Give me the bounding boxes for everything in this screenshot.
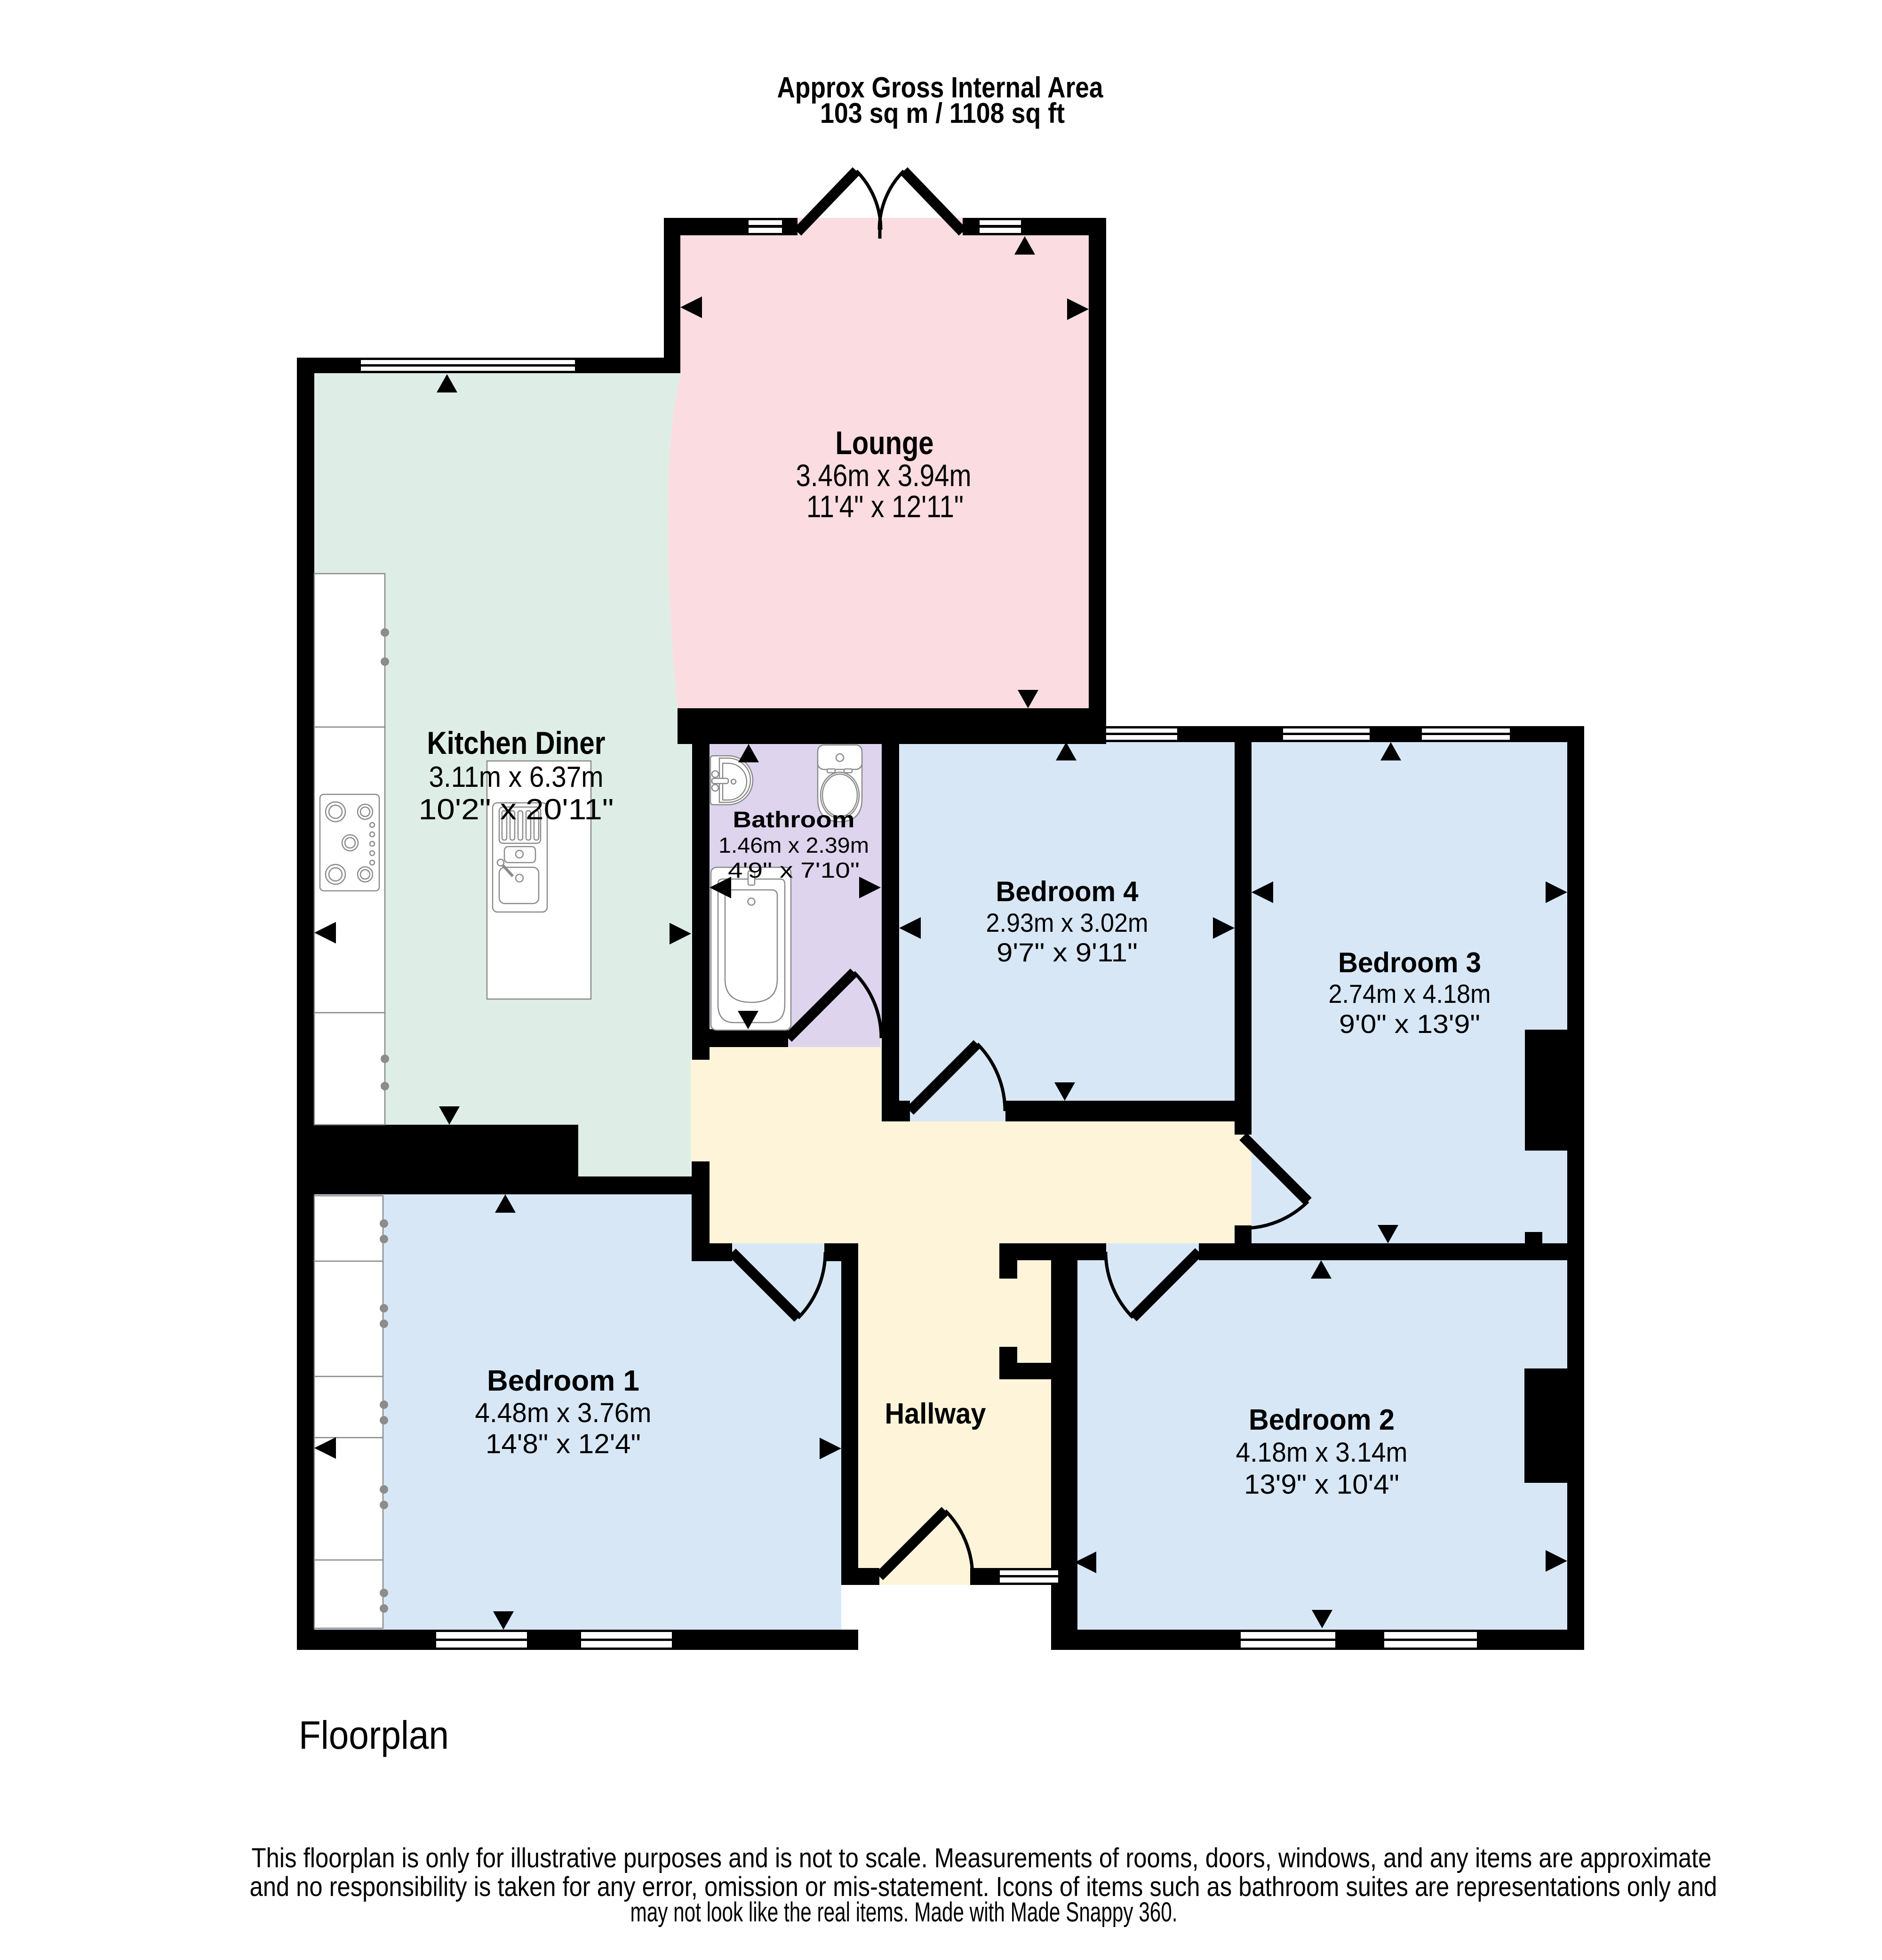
svg-text:1.46m x 2.39m: 1.46m x 2.39m — [718, 833, 869, 857]
svg-text:14'8" x 12'4": 14'8" x 12'4" — [486, 1429, 641, 1459]
svg-text:9'7" x 9'11": 9'7" x 9'11" — [997, 937, 1138, 967]
svg-text:4'9" x 7'10": 4'9" x 7'10" — [728, 858, 860, 882]
svg-text:4.48m x 3.76m: 4.48m x 3.76m — [475, 1398, 652, 1428]
svg-text:Bathroom: Bathroom — [733, 808, 855, 832]
svg-text:10'2" x 20'11": 10'2" x 20'11" — [419, 793, 614, 826]
svg-text:3.46m x 3.94m: 3.46m x 3.94m — [796, 458, 972, 493]
svg-text:2.93m x 3.02m: 2.93m x 3.02m — [986, 908, 1148, 937]
svg-text:11'4" x 12'11": 11'4" x 12'11" — [806, 489, 964, 524]
svg-text:This floorplan is only for ill: This floorplan is only for illustrative … — [252, 1843, 1712, 1873]
svg-text:may not look like the real ite: may not look like the real items. Made w… — [630, 1897, 1178, 1928]
svg-text:9'0" x 13'9": 9'0" x 13'9" — [1339, 1009, 1480, 1039]
svg-text:103 sq m / 1108 sq ft: 103 sq m / 1108 sq ft — [820, 97, 1065, 129]
svg-text:2.74m x 4.18m: 2.74m x 4.18m — [1329, 979, 1491, 1008]
svg-text:Lounge: Lounge — [836, 424, 934, 461]
svg-text:3.11m x 6.37m: 3.11m x 6.37m — [429, 761, 604, 793]
svg-text:Bedroom 1: Bedroom 1 — [487, 1365, 639, 1397]
svg-text:4.18m x 3.14m: 4.18m x 3.14m — [1236, 1437, 1408, 1468]
svg-text:Bedroom 3: Bedroom 3 — [1338, 947, 1481, 978]
svg-text:Bedroom 2: Bedroom 2 — [1249, 1404, 1395, 1436]
svg-text:Hallway: Hallway — [885, 1398, 986, 1430]
svg-text:Bedroom 4: Bedroom 4 — [996, 876, 1139, 907]
svg-text:13'9" x 10'4": 13'9" x 10'4" — [1244, 1469, 1399, 1500]
svg-text:Kitchen Diner: Kitchen Diner — [427, 725, 606, 761]
svg-text:Floorplan: Floorplan — [299, 1713, 449, 1757]
